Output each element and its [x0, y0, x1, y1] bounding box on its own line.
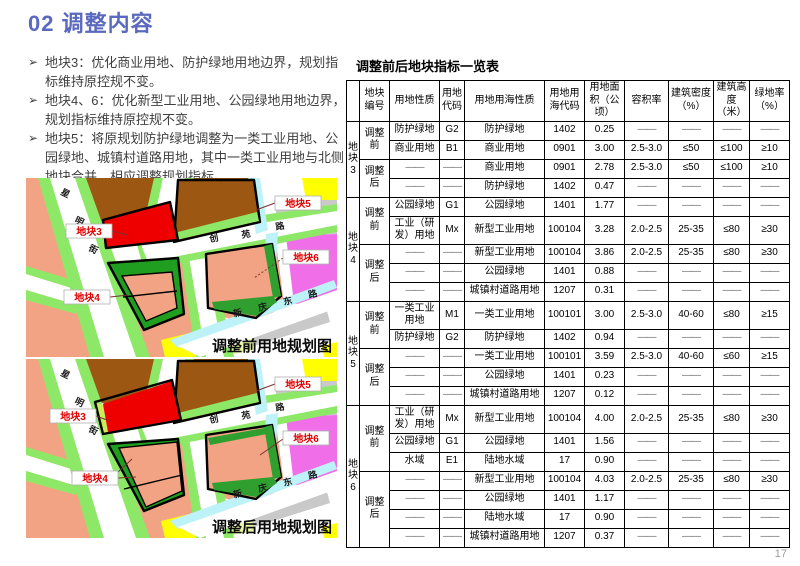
table-cell: 100101: [545, 301, 585, 329]
table-cell: ≥10: [750, 140, 790, 159]
column-header: 容积率: [625, 81, 669, 122]
table-cell: ——: [750, 178, 790, 197]
table-row: 调整后————新型工业用地1001043.862.0-2.525-35≤80≥3…: [347, 244, 790, 263]
table-cell: 2.5-3.0: [625, 348, 669, 367]
table-cell: ——: [440, 244, 465, 263]
table-cell: 1402: [545, 329, 585, 348]
table-cell: 1402: [545, 178, 585, 197]
table-row: 调整后————一类工业用地1001013.592.5-3.040-60≤60≥1…: [347, 348, 790, 367]
table-cell: 3.00: [585, 140, 625, 159]
table-cell: 100104: [545, 405, 585, 433]
table-row: 调整后————商业用地09012.782.5-3.0≤50≤100≥10: [347, 159, 790, 178]
table-row: 地块3调整前防护绿地G2防护绿地14020.25————————: [347, 121, 790, 140]
table-cell: ——: [750, 263, 790, 282]
table-cell: 城镇村道路用地: [465, 282, 545, 301]
table-cell: 17: [545, 452, 585, 471]
slide: 02 调整内容 ➢ 地块3：优化商业用地、防护绿地用地边界，规划指标维持原控规不…: [0, 0, 800, 566]
table-cell: 2.5-3.0: [625, 140, 669, 159]
table-cell: ——: [750, 386, 790, 405]
column-header: 建筑高度（米）: [714, 81, 750, 122]
table-cell: ——: [750, 490, 790, 509]
table-cell: ——: [440, 490, 465, 509]
table-row: ————公园绿地14010.88————————: [347, 263, 790, 282]
table-cell: 公园绿地: [465, 490, 545, 509]
table-cell: ——: [440, 178, 465, 197]
table-cell: ——: [625, 121, 669, 140]
table-row: 水域E1陆地水域170.90————————: [347, 452, 790, 471]
table-cell: ——: [625, 490, 669, 509]
table-cell: 3.28: [585, 216, 625, 244]
table-cell: 100104: [545, 471, 585, 490]
table-cell: 0.90: [585, 452, 625, 471]
table-cell: ——: [669, 452, 714, 471]
table-row: ————公园绿地14010.23————————: [347, 367, 790, 386]
table-cell: ——: [390, 509, 440, 528]
table-cell: 1401: [545, 367, 585, 386]
table-row: 商业用地B1商业用地09013.002.5-3.0≤50≤100≥10: [347, 140, 790, 159]
table-cell: ——: [390, 490, 440, 509]
block-label-cell: 地块5: [347, 301, 360, 405]
phase-cell: 调整后: [360, 159, 390, 197]
table-cell: ≥30: [750, 244, 790, 263]
table-cell: ——: [714, 367, 750, 386]
table-row: 地块4调整前公园绿地G1公园绿地14011.77————————: [347, 197, 790, 216]
table-cell: ——: [625, 386, 669, 405]
table-cell: 公园绿地: [465, 433, 545, 452]
table-cell: 1.77: [585, 197, 625, 216]
table-header-row: 地块编号 用地性质 用地代码 用地用海性质 用地用海代码 用地面积（公顷） 容积…: [347, 81, 790, 122]
plot-label: 地块4: [82, 472, 108, 485]
table-cell: ——: [714, 263, 750, 282]
phase-cell: 调整前: [360, 405, 390, 471]
map-caption: 调整前用地规划图: [212, 337, 332, 355]
table-cell: 3.59: [585, 348, 625, 367]
bullet-text: 地块5：将原规划防护绿地调整为一类工业用地、公园绿地、城镇村道路用地，其中一类工…: [45, 131, 344, 184]
table-cell: 新型工业用地: [465, 216, 545, 244]
table-cell: ≥30: [750, 471, 790, 490]
table-cell: ——: [714, 329, 750, 348]
table-cell: 1401: [545, 197, 585, 216]
table-cell: ——: [714, 386, 750, 405]
table-cell: 公园绿地: [465, 197, 545, 216]
table-cell: 公园绿地: [465, 263, 545, 282]
block-label-cell: 地块4: [347, 197, 360, 301]
table-cell: ——: [625, 433, 669, 452]
table-cell: ——: [669, 263, 714, 282]
table-cell: 0.12: [585, 386, 625, 405]
page-number: 17: [775, 548, 787, 560]
map-caption: 调整后用地规划图: [212, 518, 332, 536]
table-cell: 防护绿地: [390, 121, 440, 140]
table-cell: ≥10: [750, 159, 790, 178]
table-cell: ——: [750, 528, 790, 547]
table-cell: 2.5-3.0: [625, 159, 669, 178]
table-cell: 一类工业用地: [465, 348, 545, 367]
table-cell: 城镇村道路用地: [465, 528, 545, 547]
table-cell: ——: [625, 263, 669, 282]
table-cell: 0.88: [585, 263, 625, 282]
table-cell: 商业用地: [465, 159, 545, 178]
table-cell: ——: [440, 528, 465, 547]
table-cell: 25-35: [669, 244, 714, 263]
page-title: 02 调整内容: [28, 6, 154, 38]
table-cell: ——: [390, 528, 440, 547]
bullet-arrow-icon: ➢: [28, 91, 38, 110]
table-cell: 公园绿地: [390, 197, 440, 216]
table-cell: 2.0-2.5: [625, 471, 669, 490]
table-cell: ——: [669, 386, 714, 405]
table-cell: ——: [390, 471, 440, 490]
table-row: 地块6调整前工业（研发）用地Mx新型工业用地1001044.002.0-2.52…: [347, 405, 790, 433]
table-cell: B1: [440, 140, 465, 159]
table-cell: ——: [669, 178, 714, 197]
table-cell: 一类工业用地: [465, 301, 545, 329]
table-cell: ≤50: [669, 140, 714, 159]
table-cell: 4.03: [585, 471, 625, 490]
bullet-text: 地块3：优化商业用地、防护绿地用地边界，规划指标维持原控规不变。: [45, 55, 338, 89]
bullet-arrow-icon: ➢: [28, 129, 38, 148]
map-before-adjustment: 星明街 创苑路 新庆东路 地块3 地块4 地块5 地块6 调整前用地规划图: [26, 178, 337, 358]
table-cell: ——: [669, 121, 714, 140]
table-section: 调整前后地块指标一览表 地块编号 用地性质 用地代码 用地用海性质 用地用海代码…: [346, 56, 796, 548]
table-cell: ——: [714, 433, 750, 452]
table-cell: 新型工业用地: [465, 244, 545, 263]
table-cell: 40-60: [669, 301, 714, 329]
table-cell: ——: [625, 452, 669, 471]
table-cell: G1: [440, 433, 465, 452]
table-cell: ——: [440, 282, 465, 301]
map-after-adjustment: 星明街 创苑路 新庆东路 地块3 地块4 地块5 地块6 调整后用地规划图: [26, 359, 337, 539]
table-cell: ——: [750, 197, 790, 216]
table-cell: 陆地水域: [465, 509, 545, 528]
table-cell: ——: [750, 509, 790, 528]
table-cell: ——: [714, 528, 750, 547]
table-cell: G2: [440, 329, 465, 348]
table-cell: 17: [545, 509, 585, 528]
bullet-list: ➢ 地块3：优化商业用地、防护绿地用地边界，规划指标维持原控规不变。 ➢ 地块4…: [28, 53, 346, 186]
table-cell: 新型工业用地: [465, 405, 545, 433]
table-cell: G2: [440, 121, 465, 140]
bullet-text: 地块4、6：优化新型工业用地、公园绿地用地边界，规划指标维持原控规不变。: [45, 93, 345, 127]
table-cell: 1.56: [585, 433, 625, 452]
phase-cell: 调整前: [360, 197, 390, 244]
column-header: 建筑密度（%）: [669, 81, 714, 122]
table-cell: ——: [625, 329, 669, 348]
table-cell: ——: [750, 367, 790, 386]
table-cell: ——: [669, 509, 714, 528]
table-cell: ——: [714, 490, 750, 509]
table-cell: ——: [440, 159, 465, 178]
table-cell: ——: [625, 178, 669, 197]
table-cell: ≥30: [750, 216, 790, 244]
table-cell: 100104: [545, 216, 585, 244]
table-cell: ——: [390, 386, 440, 405]
table-cell: ——: [625, 197, 669, 216]
table-cell: ——: [390, 178, 440, 197]
table-cell: ——: [390, 367, 440, 386]
table-cell: 25-35: [669, 471, 714, 490]
table-cell: ——: [669, 528, 714, 547]
table-cell: ——: [625, 367, 669, 386]
table-cell: ——: [440, 348, 465, 367]
table-row: 调整后————新型工业用地1001044.032.0-2.525-35≤80≥3…: [347, 471, 790, 490]
bullet-item: ➢ 地块3：优化商业用地、防护绿地用地边界，规划指标维持原控规不变。: [28, 53, 346, 91]
table-cell: 2.5-3.0: [625, 301, 669, 329]
table-cell: 100104: [545, 244, 585, 263]
table-row: ————城镇村道路用地12070.37————————: [347, 528, 790, 547]
table-cell: 防护绿地: [390, 329, 440, 348]
table-row: ————陆地水域170.90————————: [347, 509, 790, 528]
table-row: ————防护绿地14020.47————————: [347, 178, 790, 197]
table-cell: 2.0-2.5: [625, 244, 669, 263]
table-cell: 40-60: [669, 348, 714, 367]
plot-label: 地块3: [60, 410, 86, 423]
table-cell: 0.37: [585, 528, 625, 547]
table-cell: ——: [714, 282, 750, 301]
column-header: 用地代码: [440, 81, 465, 122]
table-cell: 0.94: [585, 329, 625, 348]
table-cell: 防护绿地: [465, 178, 545, 197]
table-row: ————城镇村道路用地12070.12————————: [347, 386, 790, 405]
phase-cell: 调整前: [360, 121, 390, 159]
table-cell: ——: [669, 367, 714, 386]
table-cell: ——: [440, 471, 465, 490]
table-cell: 25-35: [669, 216, 714, 244]
table-cell: 2.78: [585, 159, 625, 178]
phase-cell: 调整前: [360, 301, 390, 348]
table-cell: ≤60: [714, 348, 750, 367]
table-title: 调整前后地块指标一览表: [356, 56, 796, 75]
table-cell: 1401: [545, 490, 585, 509]
table-cell: ——: [750, 329, 790, 348]
table-cell: ——: [440, 509, 465, 528]
table-cell: ——: [669, 329, 714, 348]
table-cell: 0901: [545, 140, 585, 159]
plot-label: 地块5: [285, 378, 311, 391]
table-cell: 工业（研发）用地: [390, 216, 440, 244]
table-cell: 1401: [545, 433, 585, 452]
table-row: ————城镇村道路用地12070.31————————: [347, 282, 790, 301]
table-cell: 1401: [545, 263, 585, 282]
table-cell: 100101: [545, 348, 585, 367]
table-cell: 0.90: [585, 509, 625, 528]
column-header: 用地面积（公顷）: [585, 81, 625, 122]
table-cell: ——: [625, 528, 669, 547]
table-row: 防护绿地G2防护绿地14020.94————————: [347, 329, 790, 348]
table-cell: 公园绿地: [465, 367, 545, 386]
column-header: 用地用海代码: [545, 81, 585, 122]
table-cell: ——: [390, 244, 440, 263]
table-cell: ——: [669, 433, 714, 452]
table-cell: 防护绿地: [465, 329, 545, 348]
table-cell: 0901: [545, 159, 585, 178]
table-cell: 1207: [545, 282, 585, 301]
table-cell: G1: [440, 197, 465, 216]
table-cell: 0.31: [585, 282, 625, 301]
phase-cell: 调整后: [360, 244, 390, 301]
table-cell: ≤80: [714, 301, 750, 329]
table-cell: 0.23: [585, 367, 625, 386]
phase-cell: 调整后: [360, 348, 390, 405]
table-row: 工业（研发）用地Mx新型工业用地1001043.282.0-2.525-35≤8…: [347, 216, 790, 244]
table-cell: 商业用地: [465, 140, 545, 159]
table-row: 地块5调整前一类工业用地M1一类工业用地1001013.002.5-3.040-…: [347, 301, 790, 329]
table-cell: 0.47: [585, 178, 625, 197]
table-cell: ——: [669, 490, 714, 509]
table-cell: ≤50: [669, 159, 714, 178]
table-cell: ≤80: [714, 471, 750, 490]
table-cell: ——: [390, 159, 440, 178]
table-cell: 3.86: [585, 244, 625, 263]
table-cell: ——: [669, 282, 714, 301]
table-cell: ——: [714, 452, 750, 471]
table-cell: ——: [669, 197, 714, 216]
plot-label: 地块4: [74, 291, 100, 304]
table-cell: ——: [714, 197, 750, 216]
table-cell: ——: [390, 348, 440, 367]
bullet-item: ➢ 地块4、6：优化新型工业用地、公园绿地用地边界，规划指标维持原控规不变。: [28, 91, 346, 129]
table-cell: ≥30: [750, 405, 790, 433]
plot-label: 地块6: [293, 432, 319, 445]
table-cell: ——: [625, 509, 669, 528]
plot-label: 地块6: [293, 251, 319, 264]
table-cell: ≤80: [714, 244, 750, 263]
column-header: 绿地率（%）: [750, 81, 790, 122]
table-cell: 1402: [545, 121, 585, 140]
table-cell: 0.25: [585, 121, 625, 140]
block-label-cell: 地块3: [347, 121, 360, 197]
table-cell: 1207: [545, 386, 585, 405]
indicators-table: 地块编号 用地性质 用地代码 用地用海性质 用地用海代码 用地面积（公顷） 容积…: [346, 80, 790, 548]
table-row: ————公园绿地14011.17————————: [347, 490, 790, 509]
table-cell: ——: [750, 282, 790, 301]
table-cell: 一类工业用地: [390, 301, 440, 329]
column-header: 用地性质: [390, 81, 440, 122]
bullet-arrow-icon: ➢: [28, 53, 38, 72]
table-cell: 新型工业用地: [465, 471, 545, 490]
table-cell: 1.17: [585, 490, 625, 509]
table-cell: ——: [750, 452, 790, 471]
table-cell: ——: [440, 367, 465, 386]
table-cell: 防护绿地: [465, 121, 545, 140]
table-cell: 城镇村道路用地: [465, 386, 545, 405]
table-cell: ——: [714, 121, 750, 140]
table-cell: Mx: [440, 405, 465, 433]
table-cell: 3.00: [585, 301, 625, 329]
phase-cell: 调整后: [360, 471, 390, 547]
table-cell: 2.0-2.5: [625, 405, 669, 433]
table-cell: ——: [750, 121, 790, 140]
table-cell: 2.0-2.5: [625, 216, 669, 244]
table-cell: ≤100: [714, 159, 750, 178]
table-cell: ——: [750, 433, 790, 452]
table-cell: ——: [714, 509, 750, 528]
table-cell: 陆地水域: [465, 452, 545, 471]
table-cell: ——: [625, 282, 669, 301]
table-cell: ≤80: [714, 405, 750, 433]
table-cell: ≥15: [750, 301, 790, 329]
table-cell: 工业（研发）用地: [390, 405, 440, 433]
table-cell: ——: [390, 263, 440, 282]
table-cell: 水域: [390, 452, 440, 471]
table-cell: ——: [440, 386, 465, 405]
table-cell: 商业用地: [390, 140, 440, 159]
table-cell: ≥15: [750, 348, 790, 367]
plot-label: 地块5: [285, 197, 311, 210]
table-row: 公园绿地G1公园绿地14011.56————————: [347, 433, 790, 452]
plot-label: 地块3: [76, 225, 102, 238]
table-cell: ≤100: [714, 140, 750, 159]
table-corner-cell: [347, 81, 360, 122]
table-cell: ——: [390, 282, 440, 301]
table-cell: 公园绿地: [390, 433, 440, 452]
table-cell: 4.00: [585, 405, 625, 433]
table-cell: ≤80: [714, 216, 750, 244]
table-cell: ——: [440, 263, 465, 282]
column-header: 地块编号: [360, 81, 390, 122]
column-header: 用地用海性质: [465, 81, 545, 122]
table-cell: E1: [440, 452, 465, 471]
table-cell: Mx: [440, 216, 465, 244]
table-cell: 25-35: [669, 405, 714, 433]
table-cell: ——: [714, 178, 750, 197]
table-cell: M1: [440, 301, 465, 329]
table-cell: 1207: [545, 528, 585, 547]
block-label-cell: 地块6: [347, 405, 360, 547]
